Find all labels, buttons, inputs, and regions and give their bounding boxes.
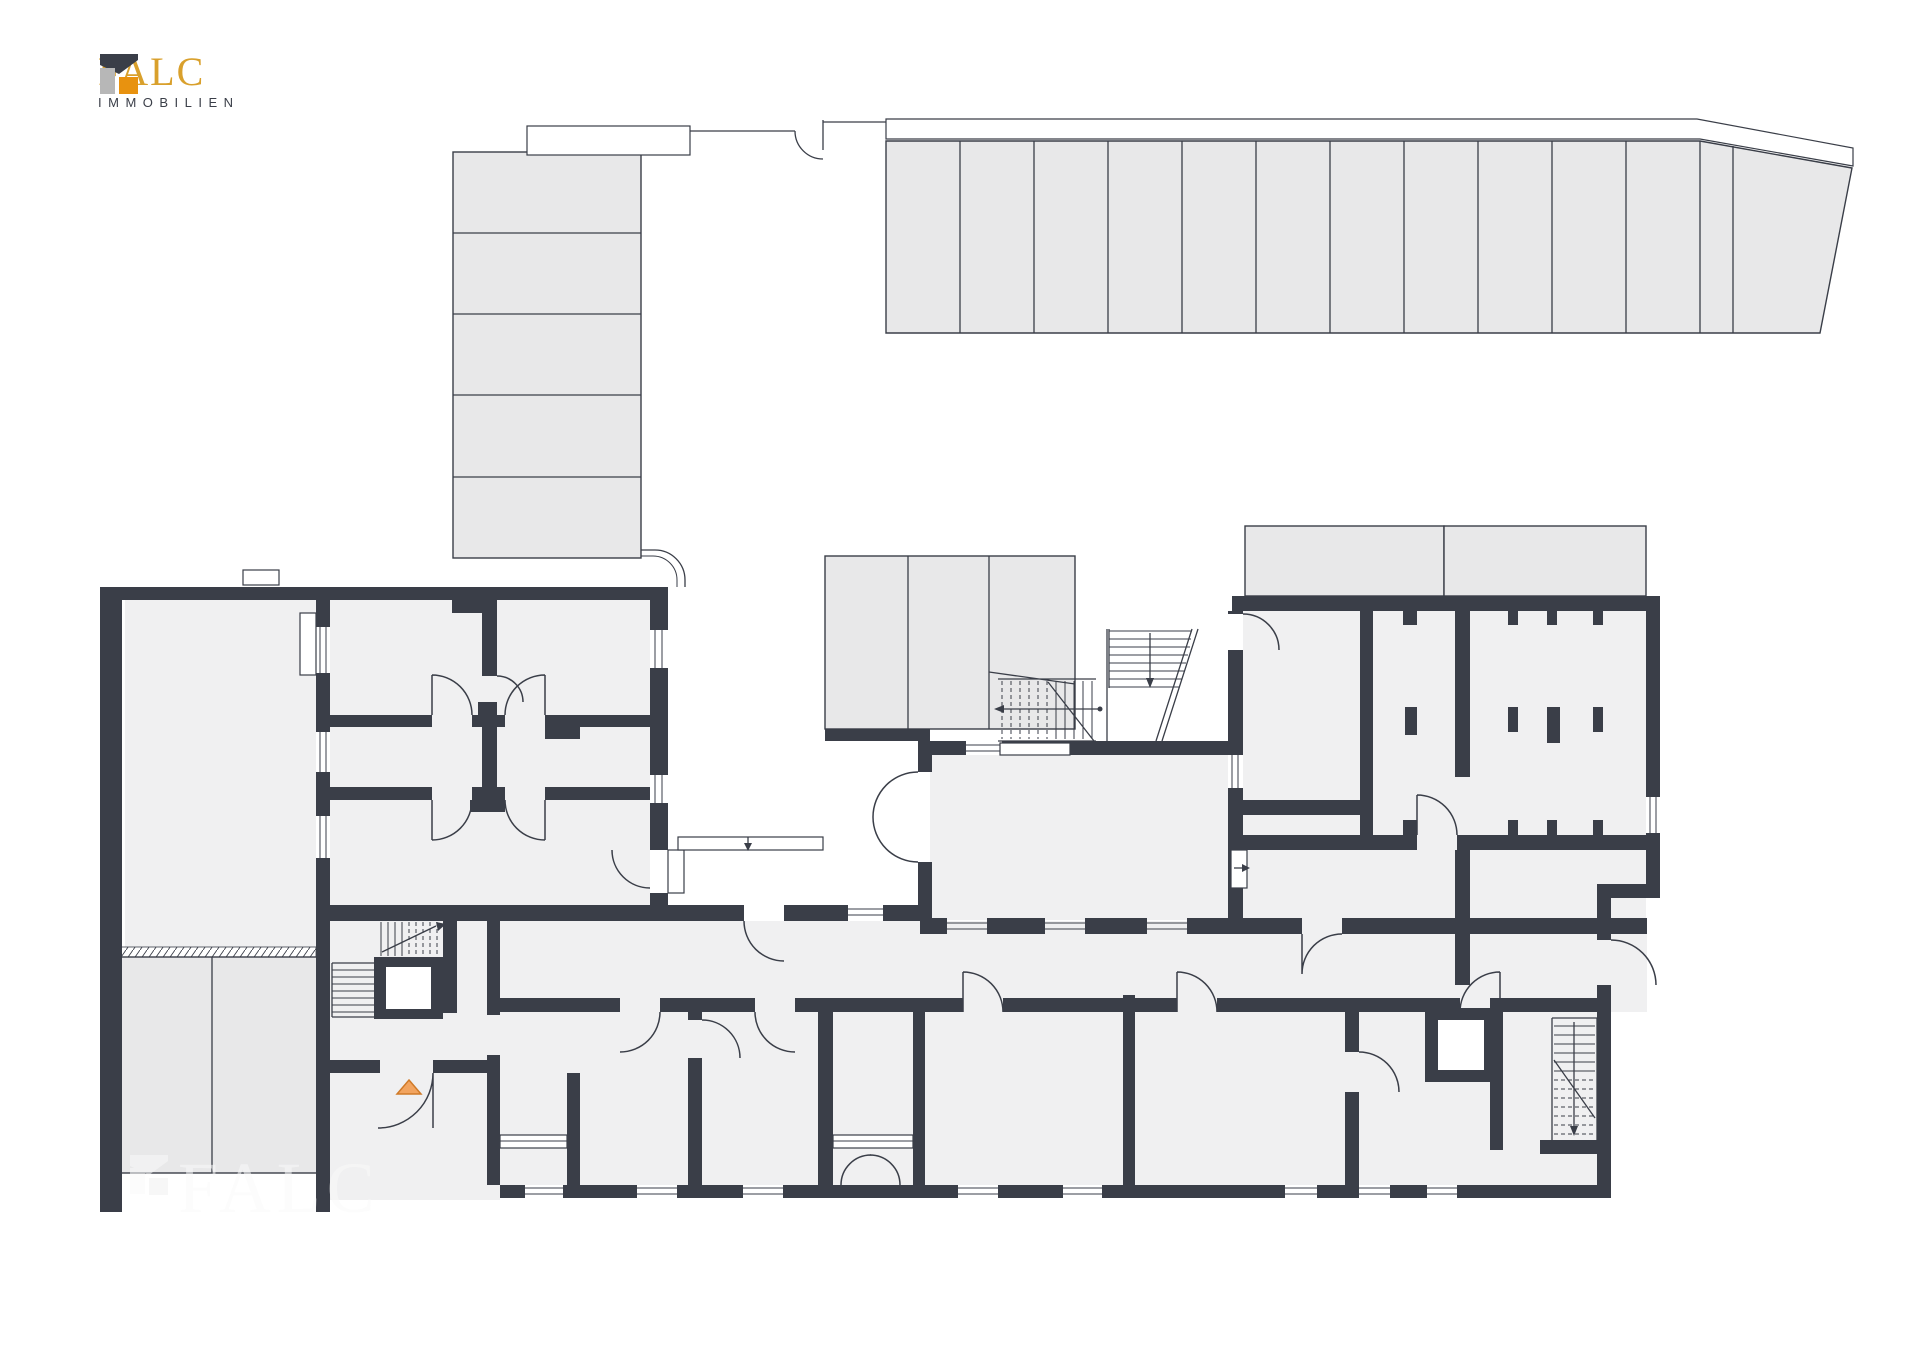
- right-parking-area: [886, 119, 1853, 333]
- entrance-ramp: [678, 837, 823, 851]
- garage-terrace: [105, 947, 317, 1173]
- svg-text:FALC: FALC: [178, 1148, 381, 1228]
- watermark: FALC: [130, 1148, 381, 1228]
- stair-entry-right-section: [1231, 850, 1250, 888]
- left-parking-area: [453, 120, 886, 587]
- floor-plan-page: FALC IMMOBILIEN: [0, 0, 1920, 1357]
- floor-plan: FALC: [0, 0, 1920, 1357]
- hatched-edge: [105, 947, 316, 957]
- elevator-cab-right: [1438, 1020, 1484, 1070]
- elevator-cab-left: [386, 967, 431, 1009]
- right-terraces: [1245, 526, 1646, 596]
- courtyard-room: [125, 600, 316, 947]
